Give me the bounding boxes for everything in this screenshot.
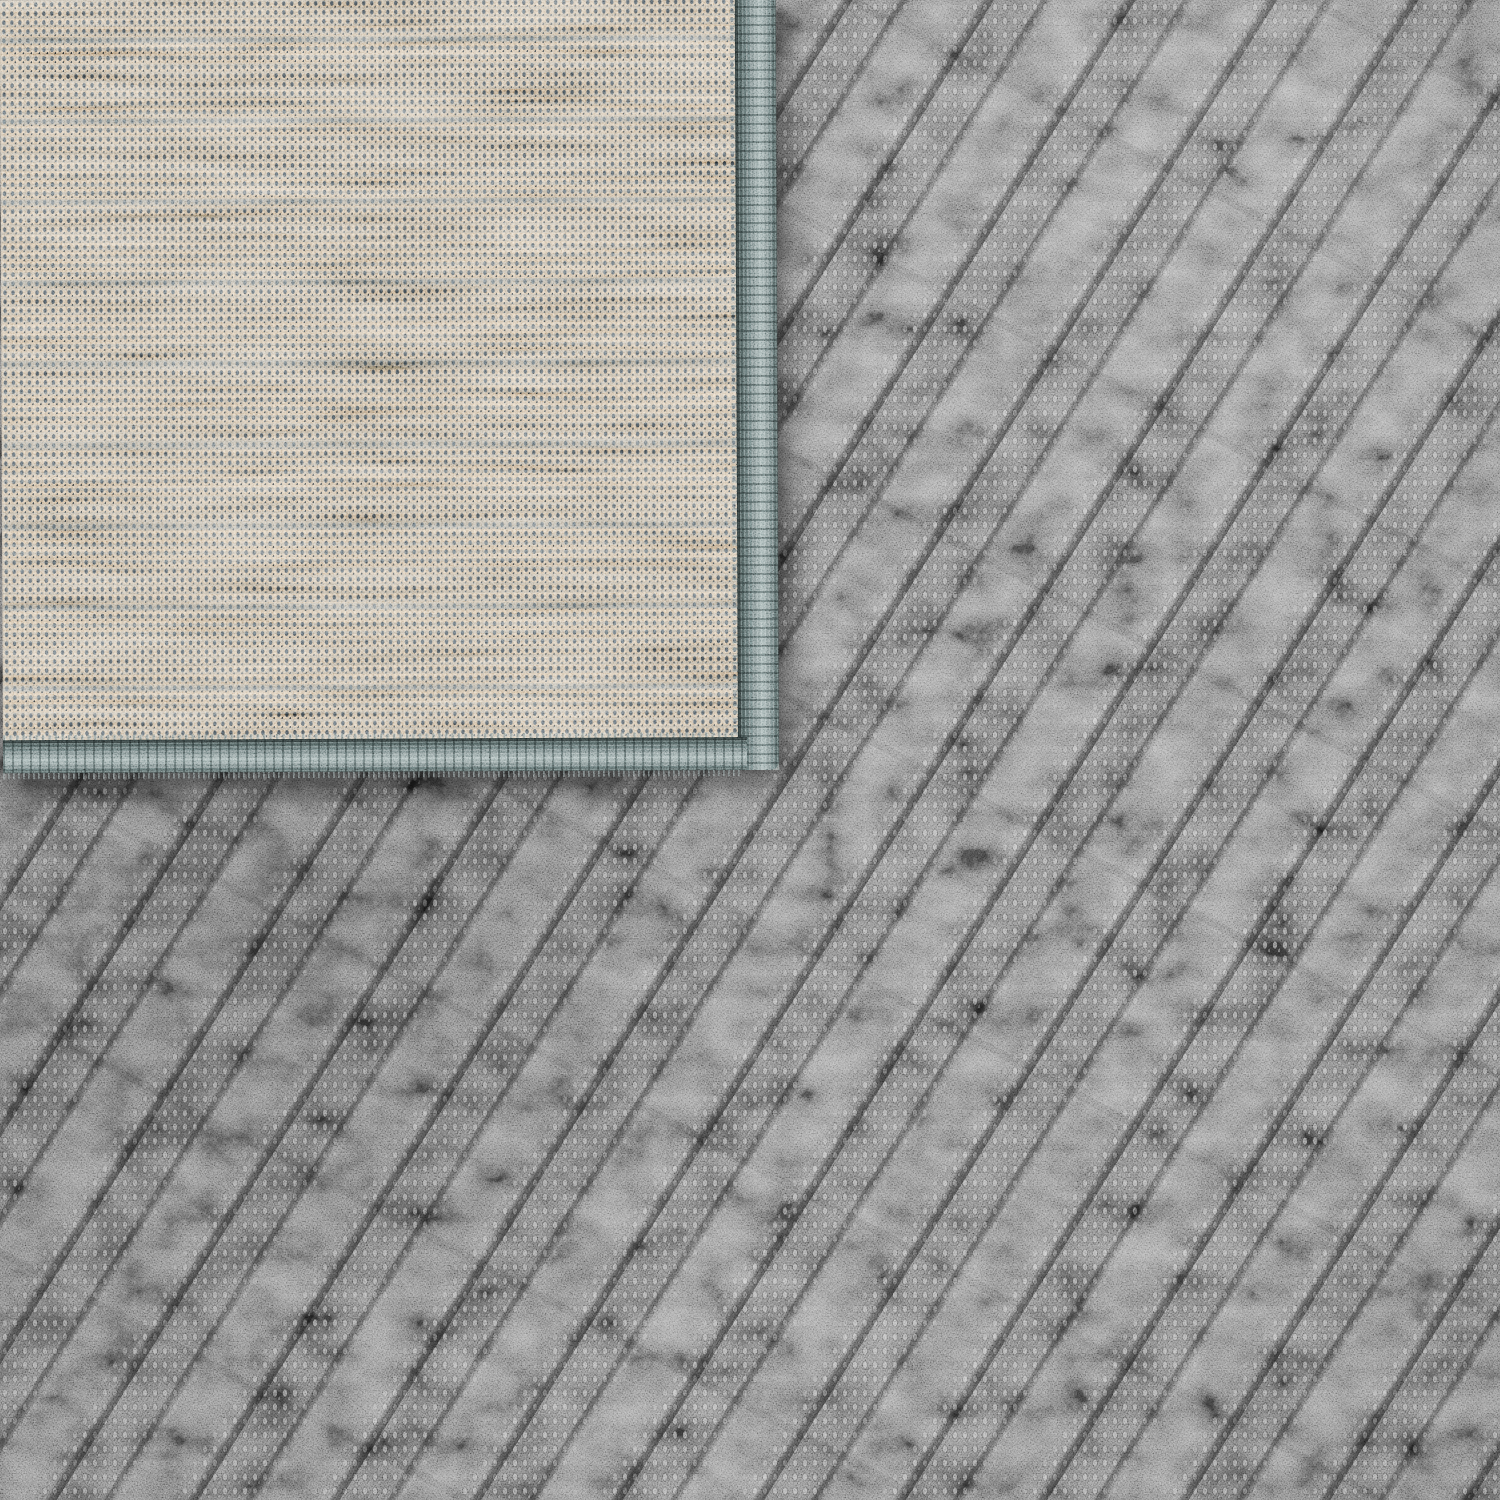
rug-product-photo bbox=[0, 0, 1500, 1500]
fiber-grain-texture bbox=[0, 0, 1500, 1500]
